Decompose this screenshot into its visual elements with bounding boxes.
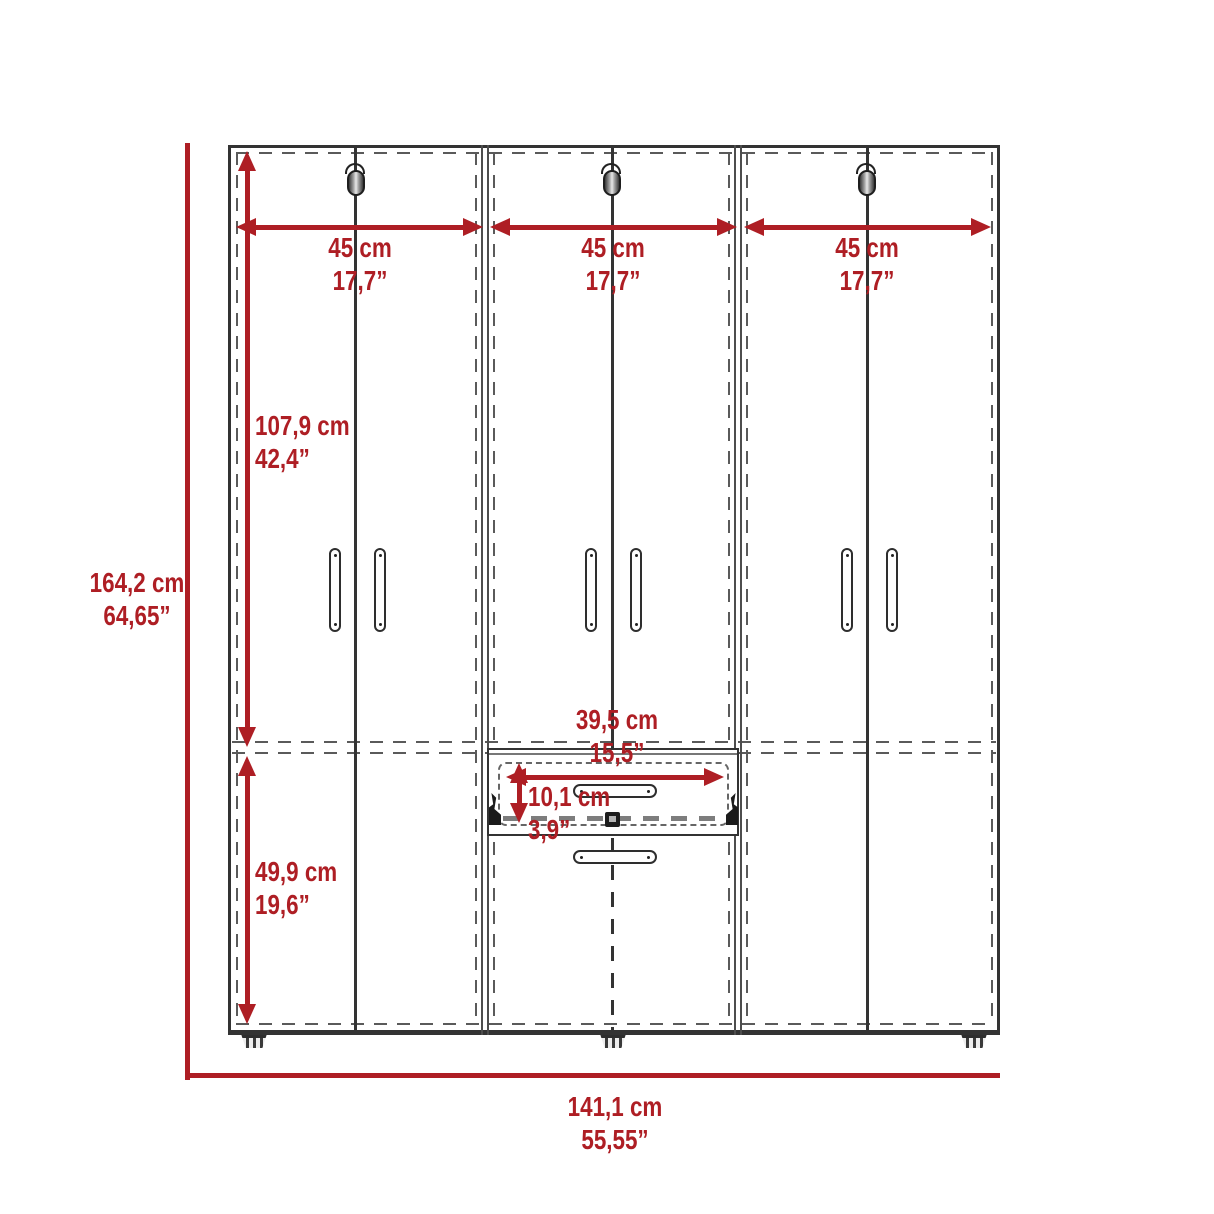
dim-inch: 55,55” bbox=[551, 1123, 679, 1156]
door-handle-icon-6 bbox=[886, 548, 898, 632]
divider-right-panel-a bbox=[734, 145, 736, 1035]
arrowhead-down-icon bbox=[510, 803, 528, 823]
drawer-width-label: 39,5 cm 15,5” bbox=[557, 703, 677, 769]
dim-inch: 17,7” bbox=[819, 264, 915, 297]
arrowhead-up-icon bbox=[510, 763, 528, 783]
door-width-arrow-left bbox=[236, 225, 483, 230]
drawer-height-arrow bbox=[517, 763, 522, 823]
dim-cm: 49,9 cm bbox=[255, 855, 337, 888]
dim-cm: 10,1 cm bbox=[528, 780, 610, 813]
arrow-bar bbox=[245, 166, 250, 732]
upper-section-height-label: 107,9 cm 42,4” bbox=[255, 409, 373, 475]
arrowhead-left-icon bbox=[490, 218, 510, 236]
arrowhead-down-icon bbox=[238, 1004, 256, 1024]
arrow-bar bbox=[505, 225, 722, 230]
arrowhead-right-icon bbox=[463, 218, 483, 236]
arrow-bar bbox=[251, 225, 468, 230]
door-width-label-center: 45 cm 17,7” bbox=[553, 231, 673, 297]
arrow-bar bbox=[245, 771, 250, 1009]
arrow-bar bbox=[759, 225, 976, 230]
drawer-centerline-dashed bbox=[611, 838, 614, 1030]
dim-inch: 19,6” bbox=[255, 888, 337, 921]
arrowhead-right-icon bbox=[704, 768, 724, 786]
drawer-height-label: 10,1 cm 3,9” bbox=[528, 780, 631, 846]
overall-height-label: 164,2 cm 64,65” bbox=[57, 566, 217, 632]
door-handle-icon-1 bbox=[329, 548, 341, 632]
divider-right-dash-a bbox=[728, 152, 730, 1025]
divider-right-panel-b bbox=[740, 145, 742, 1035]
door-handle-icon-4 bbox=[630, 548, 642, 632]
door-width-arrow-center bbox=[490, 225, 737, 230]
arrowhead-down-icon bbox=[238, 727, 256, 747]
arrowhead-up-icon bbox=[238, 756, 256, 776]
overall-width-label: 141,1 cm 55,55” bbox=[535, 1090, 695, 1156]
hinge-icon-right bbox=[858, 170, 876, 196]
foot-icon-right bbox=[959, 1035, 989, 1048]
hinge-icon-left bbox=[347, 170, 365, 196]
door-handle-icon-5 bbox=[841, 548, 853, 632]
arrowhead-left-icon bbox=[744, 218, 764, 236]
arrowhead-right-icon bbox=[971, 218, 991, 236]
lower-height-arrow bbox=[245, 756, 250, 1024]
arrowhead-right-icon bbox=[717, 218, 737, 236]
wardrobe-dimension-diagram: 45 cm 17,7” 45 cm 17,7” 45 cm 17,7” 164,… bbox=[0, 0, 1214, 1214]
dim-inch: 17,7” bbox=[312, 264, 408, 297]
divider-left-dash-a bbox=[475, 152, 477, 1025]
hinge-icon-center bbox=[603, 170, 621, 196]
dim-inch: 15,5” bbox=[569, 736, 665, 769]
inner-dash-right bbox=[991, 152, 993, 1025]
door-handle-icon-2 bbox=[374, 548, 386, 632]
door-width-arrow-right bbox=[744, 225, 991, 230]
dim-cm: 107,9 cm bbox=[255, 409, 350, 442]
drawer-handle-icon-lower bbox=[573, 850, 657, 864]
dim-cm: 45 cm bbox=[565, 231, 661, 264]
arrowhead-up-icon bbox=[238, 151, 256, 171]
door-width-label-left: 45 cm 17,7” bbox=[300, 231, 420, 297]
divider-right-dash-b bbox=[746, 152, 748, 1025]
lower-section-height-label: 49,9 cm 19,6” bbox=[255, 855, 358, 921]
dim-cm: 164,2 cm bbox=[73, 566, 201, 599]
divider-left-panel-a bbox=[481, 145, 483, 1035]
foot-icon-left bbox=[239, 1035, 269, 1048]
foot-icon-center bbox=[598, 1035, 628, 1048]
dim-cm: 141,1 cm bbox=[551, 1090, 679, 1123]
door-handle-icon-3 bbox=[585, 548, 597, 632]
inner-dash-bottom bbox=[236, 1023, 993, 1025]
dim-cm: 45 cm bbox=[312, 231, 408, 264]
divider-left-dash-b bbox=[493, 152, 495, 1025]
divider-left-panel-b bbox=[487, 145, 489, 1035]
inner-dash-left bbox=[236, 152, 238, 1025]
dim-cm: 45 cm bbox=[819, 231, 915, 264]
upper-height-arrow bbox=[245, 151, 250, 747]
inner-dash-top bbox=[236, 152, 993, 154]
dim-cm: 39,5 cm bbox=[569, 703, 665, 736]
dim-inch: 64,65” bbox=[73, 599, 201, 632]
dim-inch: 3,9” bbox=[528, 813, 610, 846]
door-width-label-right: 45 cm 17,7” bbox=[807, 231, 927, 297]
width-extent-line bbox=[185, 1073, 1000, 1078]
dim-inch: 42,4” bbox=[255, 442, 350, 475]
dim-inch: 17,7” bbox=[565, 264, 661, 297]
